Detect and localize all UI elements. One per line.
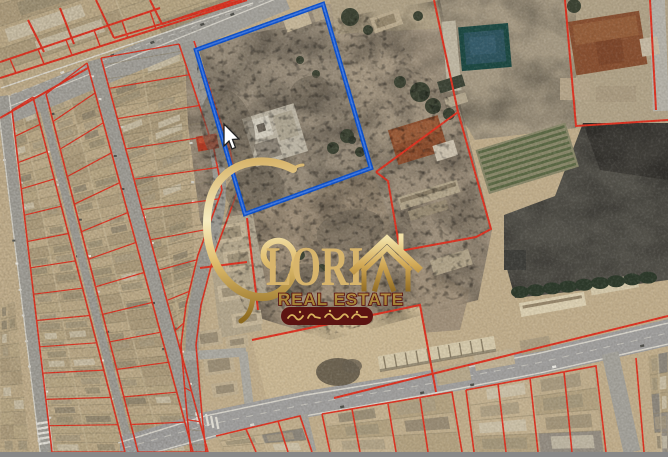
svg-text:REAL ESTATE: REAL ESTATE [278, 290, 404, 309]
svg-text:LORI: LORI [266, 236, 363, 298]
